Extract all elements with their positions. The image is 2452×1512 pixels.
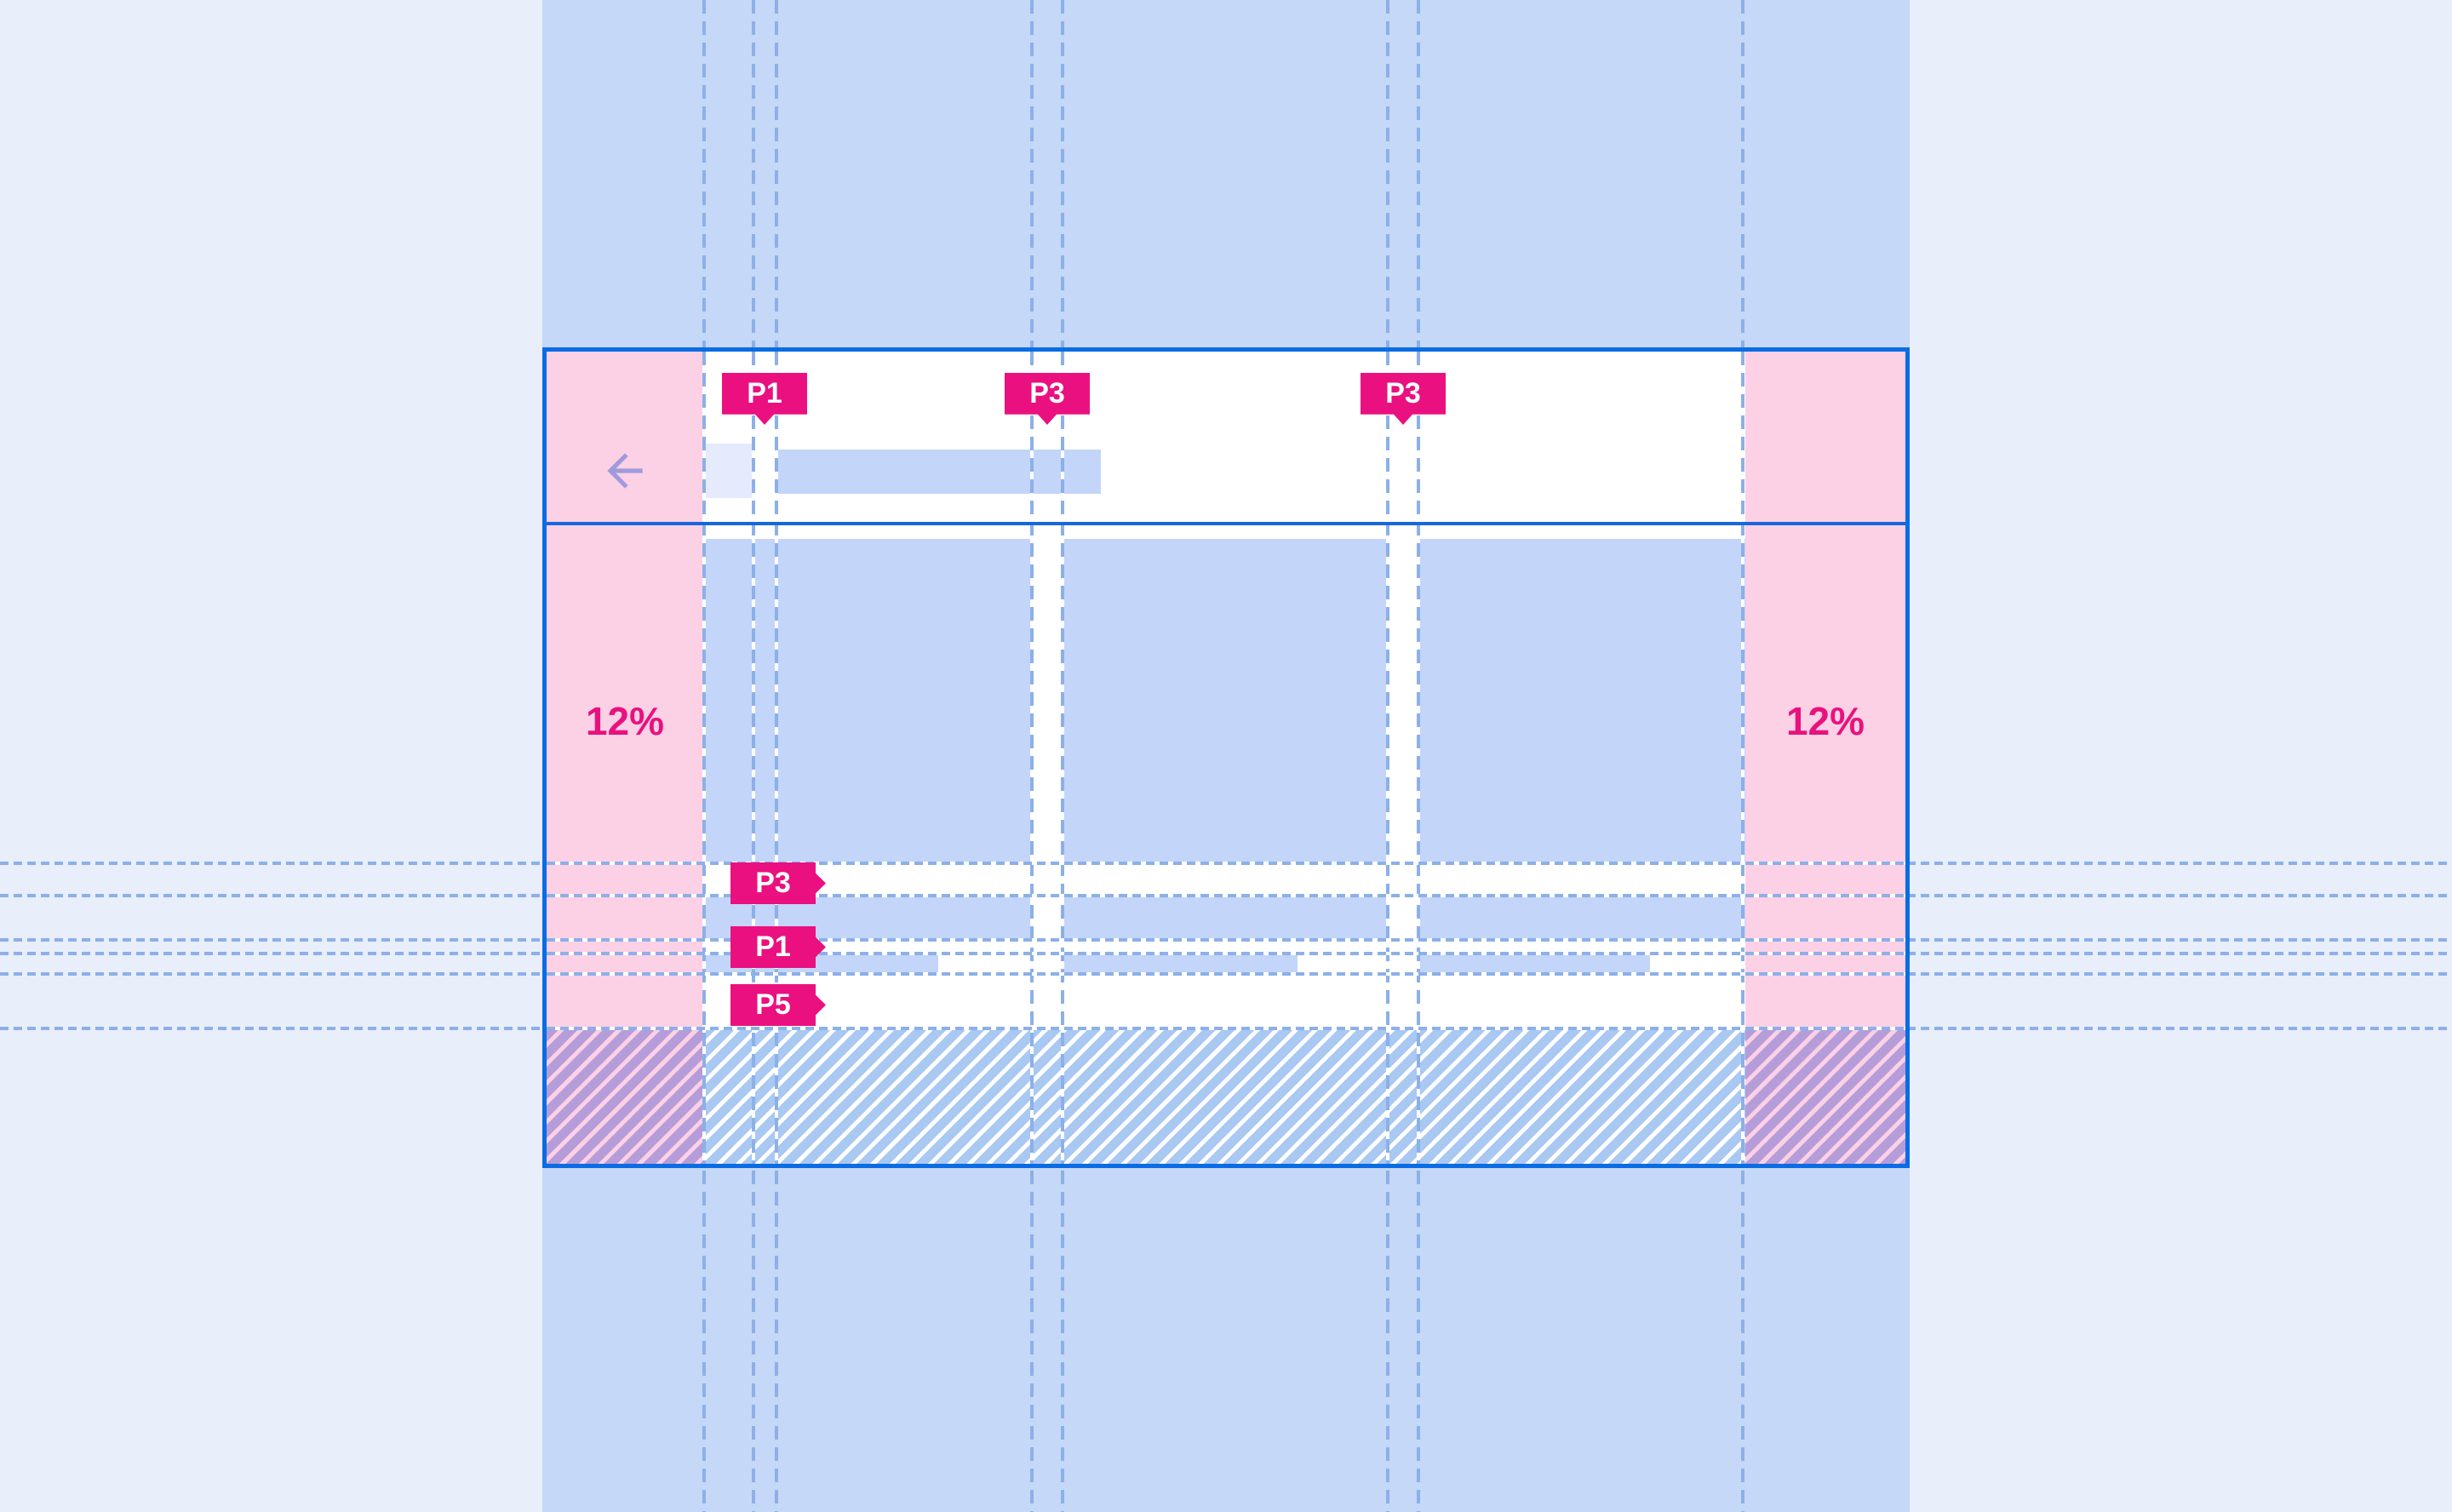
screen-mockup-outline	[542, 347, 1910, 1168]
padding-tag-p1: P1	[730, 926, 826, 968]
padding-tag-p3: P3	[730, 862, 826, 904]
padding-tag-p5: P5	[730, 984, 826, 1026]
layout-spec-canvas: 12% 12% P1 P3 P3 P3 P1 P5	[0, 0, 2452, 1512]
